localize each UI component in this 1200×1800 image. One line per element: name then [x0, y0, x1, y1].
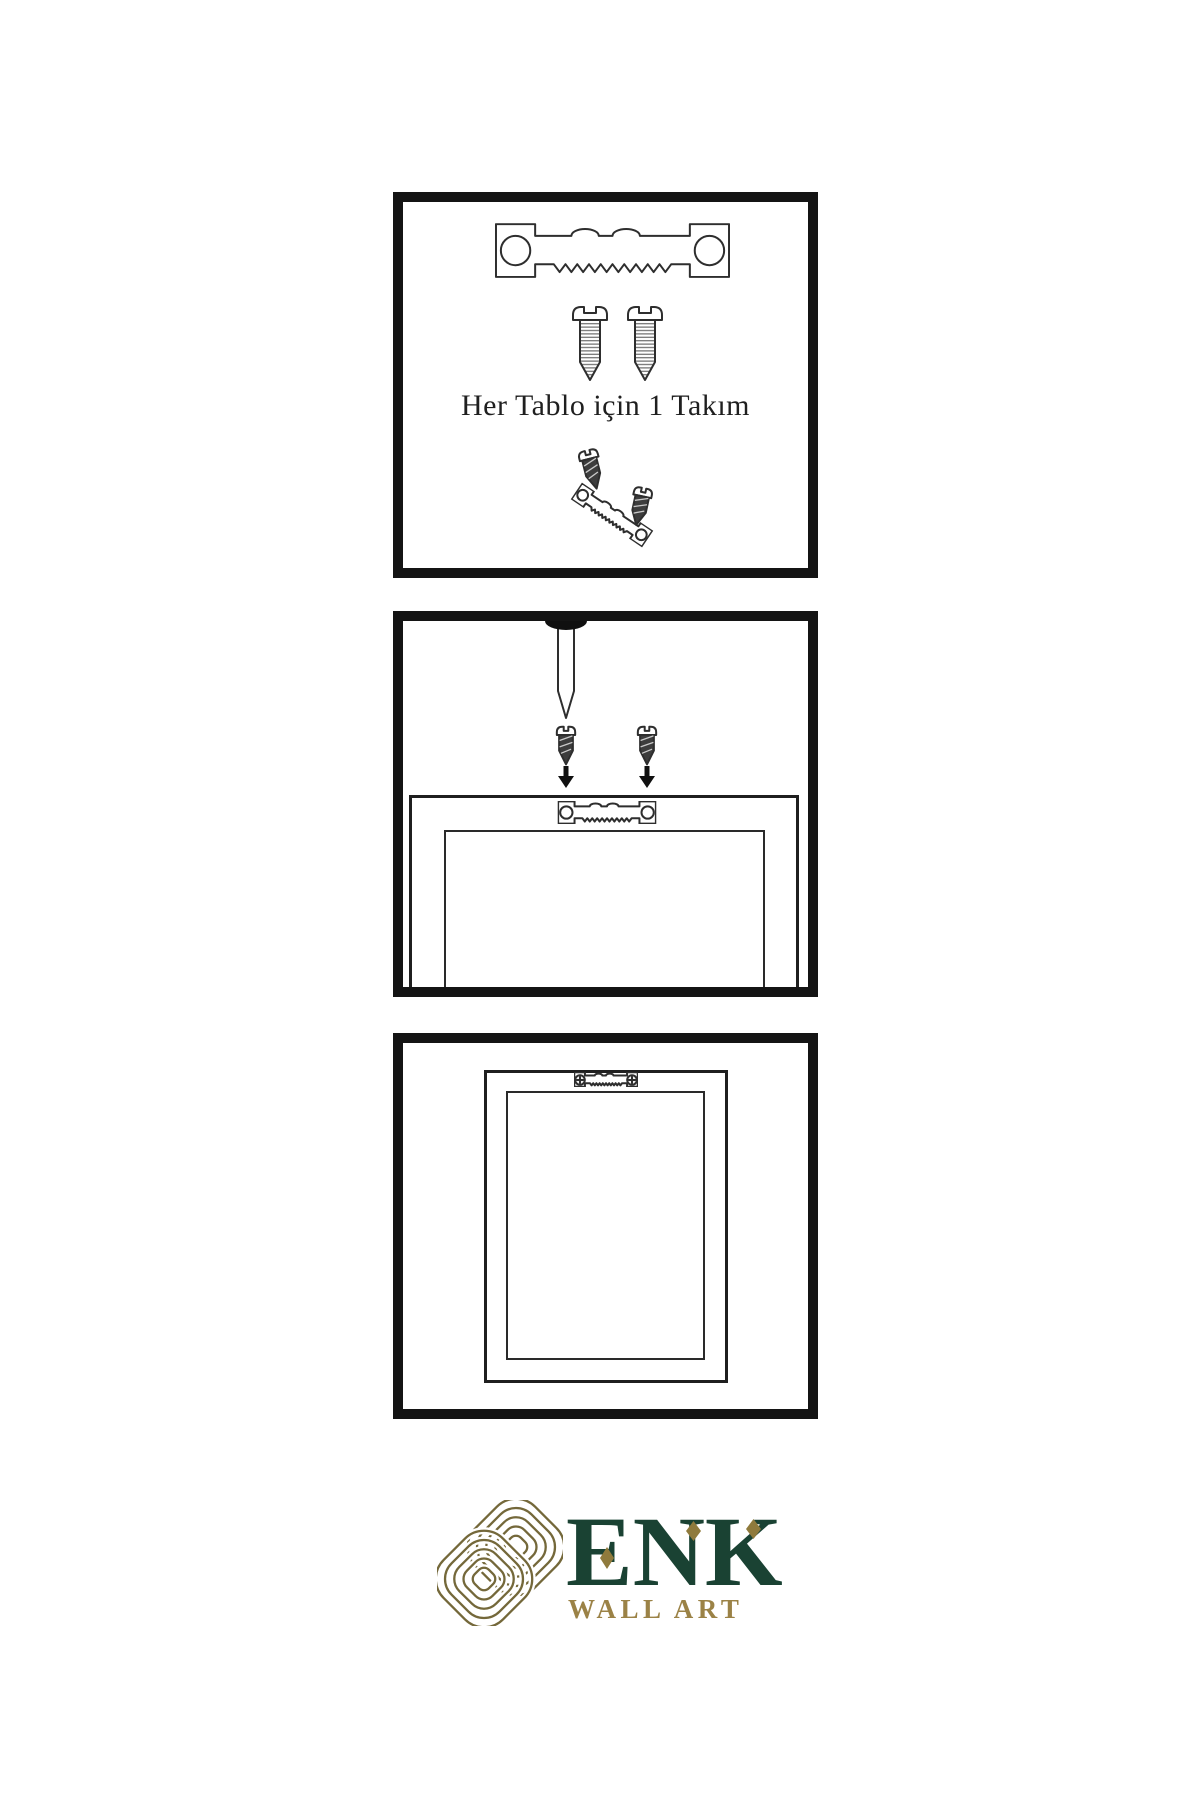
panel-result	[393, 1033, 818, 1419]
panel-kit-contents	[393, 192, 818, 578]
frame-inner	[506, 1091, 705, 1360]
screw-icon	[571, 305, 609, 385]
kit-caption: Her Tablo için 1 Takım	[393, 391, 818, 421]
arrow-down-icon	[558, 766, 574, 788]
screw-icon	[626, 305, 664, 385]
sawtooth-hanger-icon	[495, 223, 730, 278]
brand-subtitle: WALL ART	[568, 1596, 743, 1623]
instruction-sheet: Her Tablo için 1 Takım	[0, 0, 1200, 1800]
frame-back-inner	[444, 830, 765, 997]
arrow-down-icon	[639, 766, 655, 788]
phillips-screw-head-icon	[626, 1074, 638, 1086]
panel-install	[393, 611, 818, 997]
screw-icon	[636, 723, 658, 769]
phillips-screw-head-icon	[574, 1074, 586, 1086]
screw-icon	[555, 723, 577, 769]
knot-logo-icon	[437, 1500, 563, 1626]
brand-wordmark: ENK	[566, 1502, 783, 1602]
hanger-assembly-icon	[565, 448, 665, 548]
nail-icon	[542, 621, 590, 725]
sawtooth-hanger-icon	[557, 801, 657, 824]
